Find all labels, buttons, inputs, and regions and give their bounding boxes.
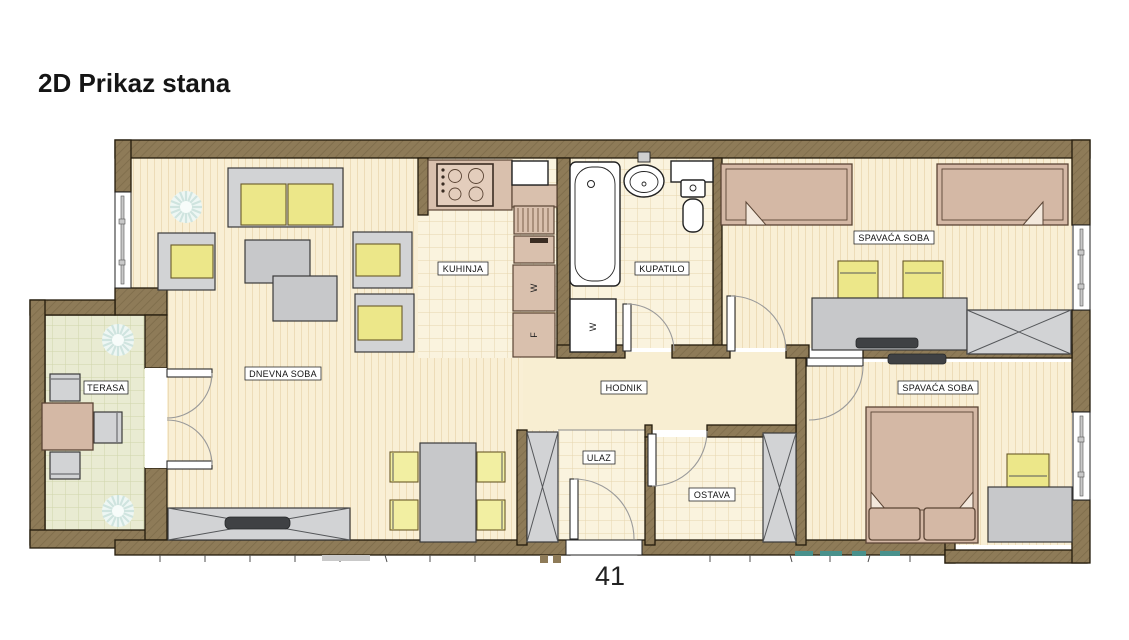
bathroom-washer-label: W bbox=[588, 322, 598, 331]
stove bbox=[437, 164, 493, 206]
kitchen-sink bbox=[512, 161, 548, 185]
window-right-bottom bbox=[1073, 412, 1090, 500]
label-spavaca-soba-1: SPAVAĆA SOBA bbox=[854, 231, 934, 244]
dining-chair bbox=[477, 452, 505, 482]
label-dnevna-soba: DNEVNA SOBA bbox=[245, 367, 321, 380]
svg-text:DNEVNA SOBA: DNEVNA SOBA bbox=[249, 369, 317, 379]
floor-plan-page: W F W bbox=[0, 0, 1129, 640]
label-kupatilo: KUPATILO bbox=[635, 262, 689, 275]
svg-text:ULAZ: ULAZ bbox=[587, 453, 611, 463]
label-spavaca-soba-2: SPAVAĆA SOBA bbox=[898, 381, 978, 394]
desk-chair-2 bbox=[903, 261, 943, 298]
svg-text:KUHINJA: KUHINJA bbox=[443, 264, 484, 274]
desk-bedroom2 bbox=[988, 487, 1072, 542]
wardrobe-entry bbox=[527, 432, 558, 542]
kitchen-cabinet-unit bbox=[514, 236, 554, 263]
pillow bbox=[869, 508, 920, 540]
desk-bedroom1 bbox=[812, 298, 967, 350]
coffee-table-2 bbox=[273, 276, 337, 321]
kitchen-fridge: F bbox=[513, 313, 555, 357]
terrace-chair bbox=[50, 374, 80, 401]
floor-plan-drawing: W F W bbox=[0, 0, 1129, 640]
wardrobe-storage bbox=[763, 433, 796, 542]
plant-living-room bbox=[170, 191, 202, 223]
hallway-floor bbox=[523, 352, 796, 430]
desk-chair-bedroom2 bbox=[1007, 454, 1049, 488]
label-terasa: TERASA bbox=[84, 381, 128, 394]
cutoff-artifact bbox=[540, 555, 548, 563]
svg-text:SPAVAĆA SOBA: SPAVAĆA SOBA bbox=[858, 233, 929, 243]
svg-text:SPAVAĆA SOBA: SPAVAĆA SOBA bbox=[902, 383, 973, 393]
cutoff-artifact bbox=[553, 555, 561, 563]
window-left bbox=[115, 192, 131, 288]
dining-chair bbox=[390, 452, 418, 482]
kitchen-drawer-unit bbox=[514, 206, 554, 234]
tv-screen bbox=[225, 517, 290, 529]
dining-chair bbox=[390, 500, 418, 530]
kitchen-washer: W bbox=[513, 265, 555, 311]
label-ulaz: ULAZ bbox=[583, 451, 615, 464]
page-title: 2D Prikaz stana bbox=[38, 68, 231, 98]
kitchen-fridge-label: F bbox=[529, 332, 539, 338]
armchair-right-2 bbox=[355, 294, 414, 352]
plant-terrace-top bbox=[102, 324, 134, 356]
label-hodnik: HODNIK bbox=[601, 381, 647, 394]
single-bed-2 bbox=[937, 164, 1068, 225]
bathroom-washer: W bbox=[570, 299, 616, 352]
plant-terrace-bottom bbox=[102, 495, 134, 527]
double-bed bbox=[866, 407, 978, 543]
armchair-right-1 bbox=[353, 232, 412, 288]
single-bed-1 bbox=[721, 164, 852, 225]
laptop bbox=[856, 338, 918, 348]
tv-bedroom2 bbox=[888, 354, 946, 364]
dining-chair bbox=[477, 500, 505, 530]
cutoff-artifact bbox=[322, 555, 370, 561]
svg-text:HODNIK: HODNIK bbox=[606, 383, 643, 393]
desk-chair-1 bbox=[838, 261, 878, 298]
kitchen-washer-label: W bbox=[529, 283, 539, 292]
tv-cabinet bbox=[168, 508, 350, 540]
label-ostava: OSTAVA bbox=[689, 488, 735, 501]
window-right-top bbox=[1073, 225, 1090, 310]
toilet bbox=[681, 180, 705, 232]
terrace-chair bbox=[50, 452, 80, 479]
label-kuhinja: KUHINJA bbox=[438, 262, 488, 275]
bathroom-wall-niche bbox=[671, 161, 713, 182]
svg-text:OSTAVA: OSTAVA bbox=[694, 490, 730, 500]
bathtub bbox=[570, 162, 620, 286]
armchair-left bbox=[158, 233, 215, 290]
page-number: 41 bbox=[595, 561, 625, 591]
pillow bbox=[924, 508, 975, 540]
sofa bbox=[228, 168, 343, 227]
terrace-chair bbox=[94, 412, 122, 443]
svg-text:TERASA: TERASA bbox=[87, 383, 125, 393]
terrace-table bbox=[42, 403, 93, 450]
dining-table bbox=[420, 443, 476, 542]
svg-text:KUPATILO: KUPATILO bbox=[639, 264, 685, 274]
wardrobe-bedroom1 bbox=[967, 310, 1071, 354]
